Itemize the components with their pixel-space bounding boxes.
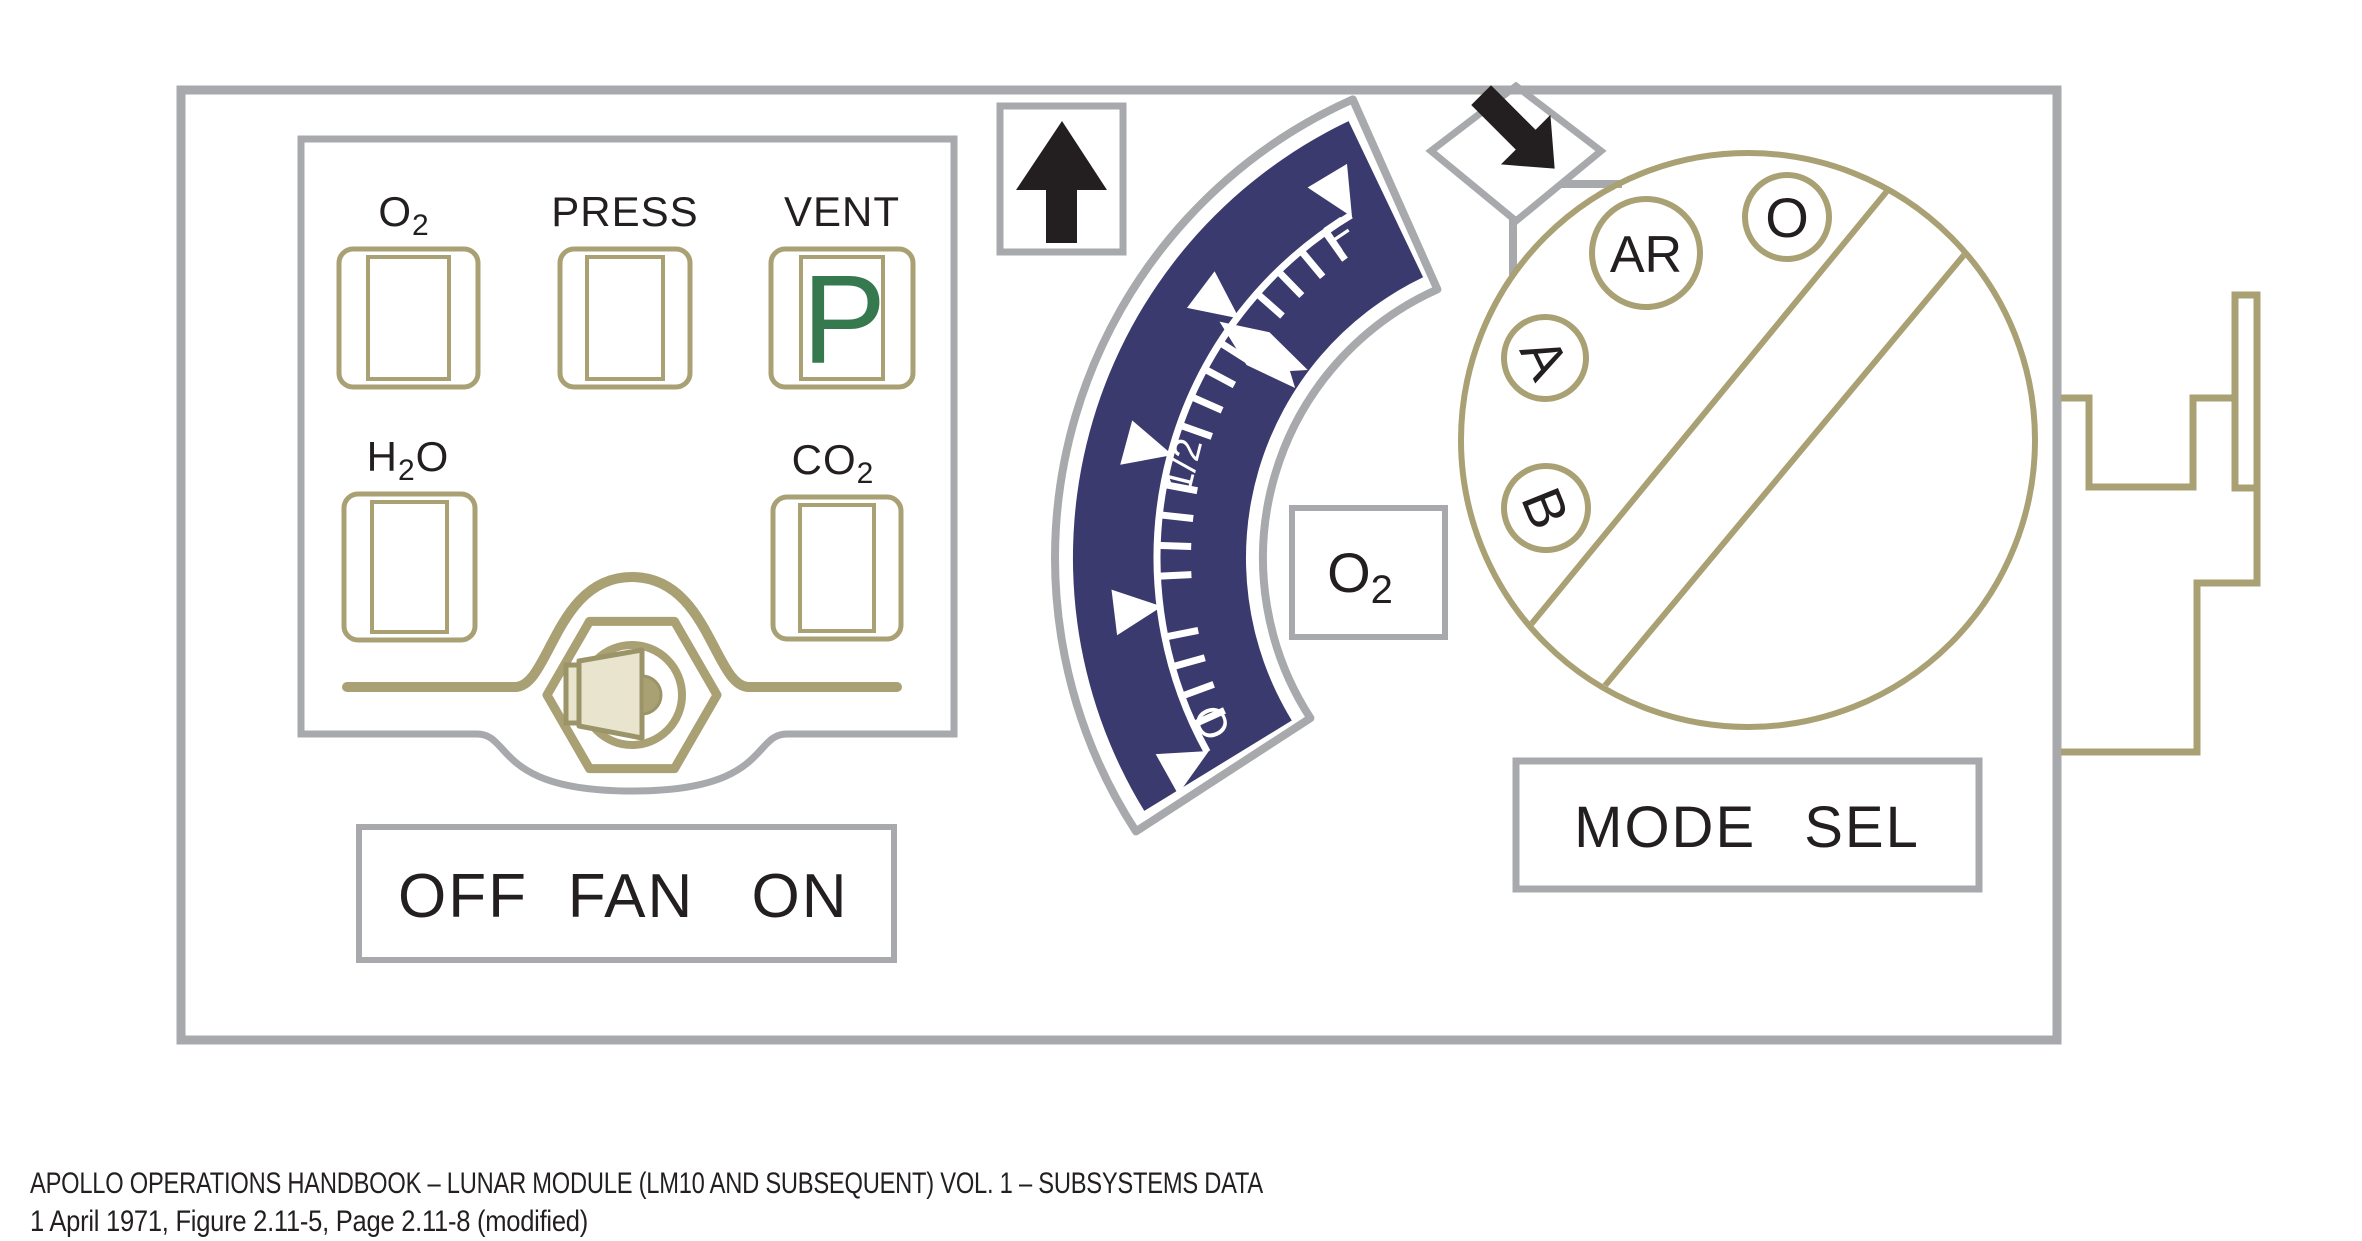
lamp-press-label: PRESS (551, 188, 698, 235)
figure-caption: APOLLO OPERATIONS HANDBOOK – LUNAR MODUL… (30, 1167, 1263, 1238)
lamp-h2o-bezel (344, 494, 475, 640)
position-label-ar: AR (1610, 226, 1682, 284)
lamp-h2o-label: H2O (367, 433, 450, 487)
panel-drawing: O2 PRESS VENT P H2O CO2 (0, 0, 2362, 1241)
bracket-arm (2061, 488, 2257, 752)
lamp-co2-window (800, 505, 874, 631)
lamp-o2: O2 (339, 188, 478, 387)
lamp-h2o-window (372, 502, 447, 632)
fan-position-on: ON (752, 862, 849, 931)
bracket-pin (2235, 295, 2257, 488)
lamp-o2-bezel (339, 249, 478, 387)
caption-line-2: 1 April 1971, Figure 2.11-5, Page 2.11-8… (30, 1205, 588, 1238)
lamp-press-window (587, 257, 663, 379)
up-arrow-callout (1000, 106, 1123, 252)
lamp-o2-window (368, 257, 449, 379)
lamp-o2-label: O2 (378, 188, 429, 242)
fan-switch (547, 621, 717, 768)
fan-position-off: OFF (398, 862, 528, 931)
mode-sel-placard: MODE SEL (1516, 761, 1979, 889)
gauge-gas-placard: O2 (1292, 508, 1445, 637)
up-arrow-icon (1016, 121, 1107, 243)
fan-switch-bat-icon (566, 650, 661, 738)
figure-canvas: O2 PRESS VENT P H2O CO2 (0, 0, 2362, 1241)
lamp-co2: CO2 (773, 436, 901, 639)
side-connector-bracket (2061, 295, 2257, 752)
fan-switch-placard: OFF FAN ON (359, 827, 894, 960)
lamp-co2-label: CO2 (792, 436, 875, 490)
lamp-press-bezel (560, 249, 690, 387)
lamp-press: PRESS (551, 188, 698, 387)
fan-switch-hub (642, 676, 661, 714)
knob-bar-line-2 (1583, 219, 1994, 712)
fan-position-fan: FAN (568, 862, 695, 931)
o2-quantity-gauge: F 1/2 O (1055, 99, 1437, 831)
fan-switch-bat-body (579, 650, 642, 738)
lamp-co2-bezel (773, 497, 901, 639)
knob-bar-line-1 (1510, 157, 1915, 650)
lamp-vent: VENT P (771, 188, 913, 390)
caption-line-1: APOLLO OPERATIONS HANDBOOK – LUNAR MODUL… (30, 1167, 1263, 1200)
mode-selector-knob: B A AR O (1461, 153, 2035, 727)
position-label-a: A (1508, 328, 1581, 390)
bracket-fork (2061, 398, 2235, 487)
tick (1157, 575, 1191, 577)
gas-placard-label: O2 (1327, 541, 1393, 612)
lamp-h2o: H2O (344, 433, 475, 640)
tick (1157, 545, 1191, 546)
mode-sel-label: MODE SEL (1574, 795, 1920, 860)
tick (1159, 515, 1193, 519)
position-label-o: O (1765, 186, 1809, 249)
lamp-vent-label: VENT (784, 188, 900, 235)
position-label-b: B (1509, 479, 1581, 537)
vent-pressure-indicator: P (802, 249, 886, 390)
